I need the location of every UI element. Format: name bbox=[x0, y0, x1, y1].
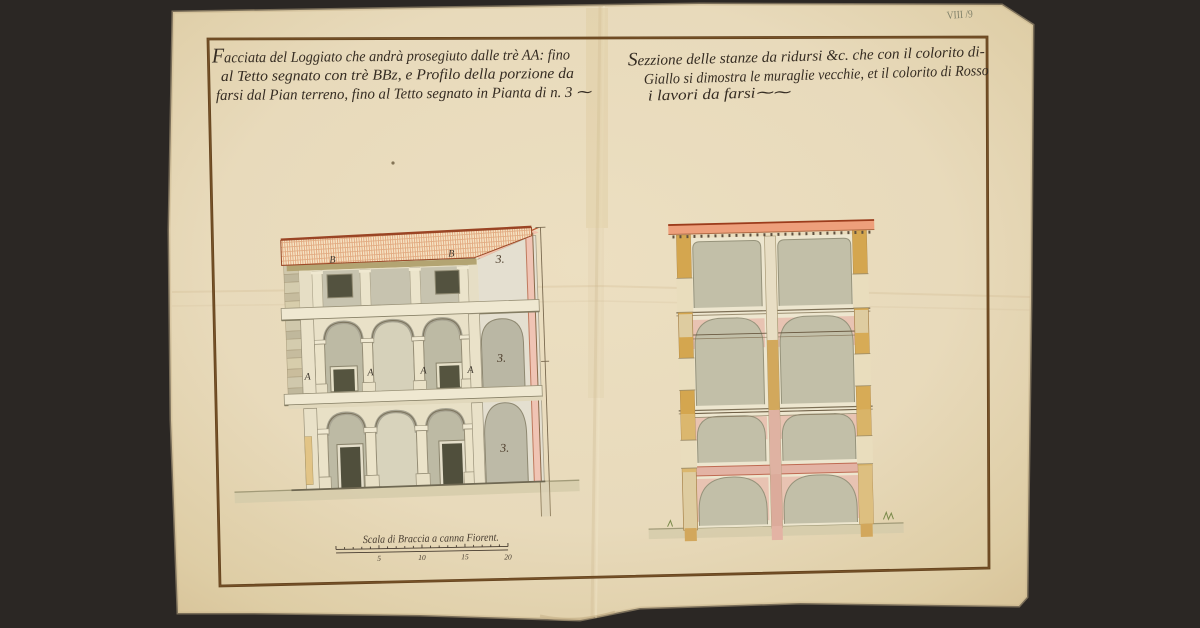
svg-text:VIII /9: VIII /9 bbox=[946, 8, 973, 22]
svg-text:3.: 3. bbox=[494, 252, 504, 266]
svg-text:A: A bbox=[303, 371, 311, 382]
svg-text:farsi dal Pian terreno, fino a: farsi dal Pian terreno, fino al Tetto se… bbox=[216, 85, 592, 104]
svg-text:B: B bbox=[448, 248, 454, 259]
svg-text:15: 15 bbox=[461, 552, 469, 561]
svg-text:A: A bbox=[366, 367, 374, 378]
svg-text:3.: 3. bbox=[496, 351, 506, 365]
svg-text:B: B bbox=[329, 255, 335, 266]
svg-text:al Tetto segnato con trè BBz,: al Tetto segnato con trè BBz, e Profilo … bbox=[221, 66, 574, 85]
svg-text:3.: 3. bbox=[499, 441, 509, 455]
svg-text:A: A bbox=[419, 365, 427, 376]
svg-text:10: 10 bbox=[418, 553, 426, 562]
svg-text:5: 5 bbox=[377, 554, 381, 563]
svg-text:20: 20 bbox=[504, 552, 512, 561]
svg-text:A: A bbox=[466, 365, 474, 376]
svg-text:Scala di Braccia a canna Fiore: Scala di Braccia a canna Fiorent. bbox=[363, 532, 499, 546]
